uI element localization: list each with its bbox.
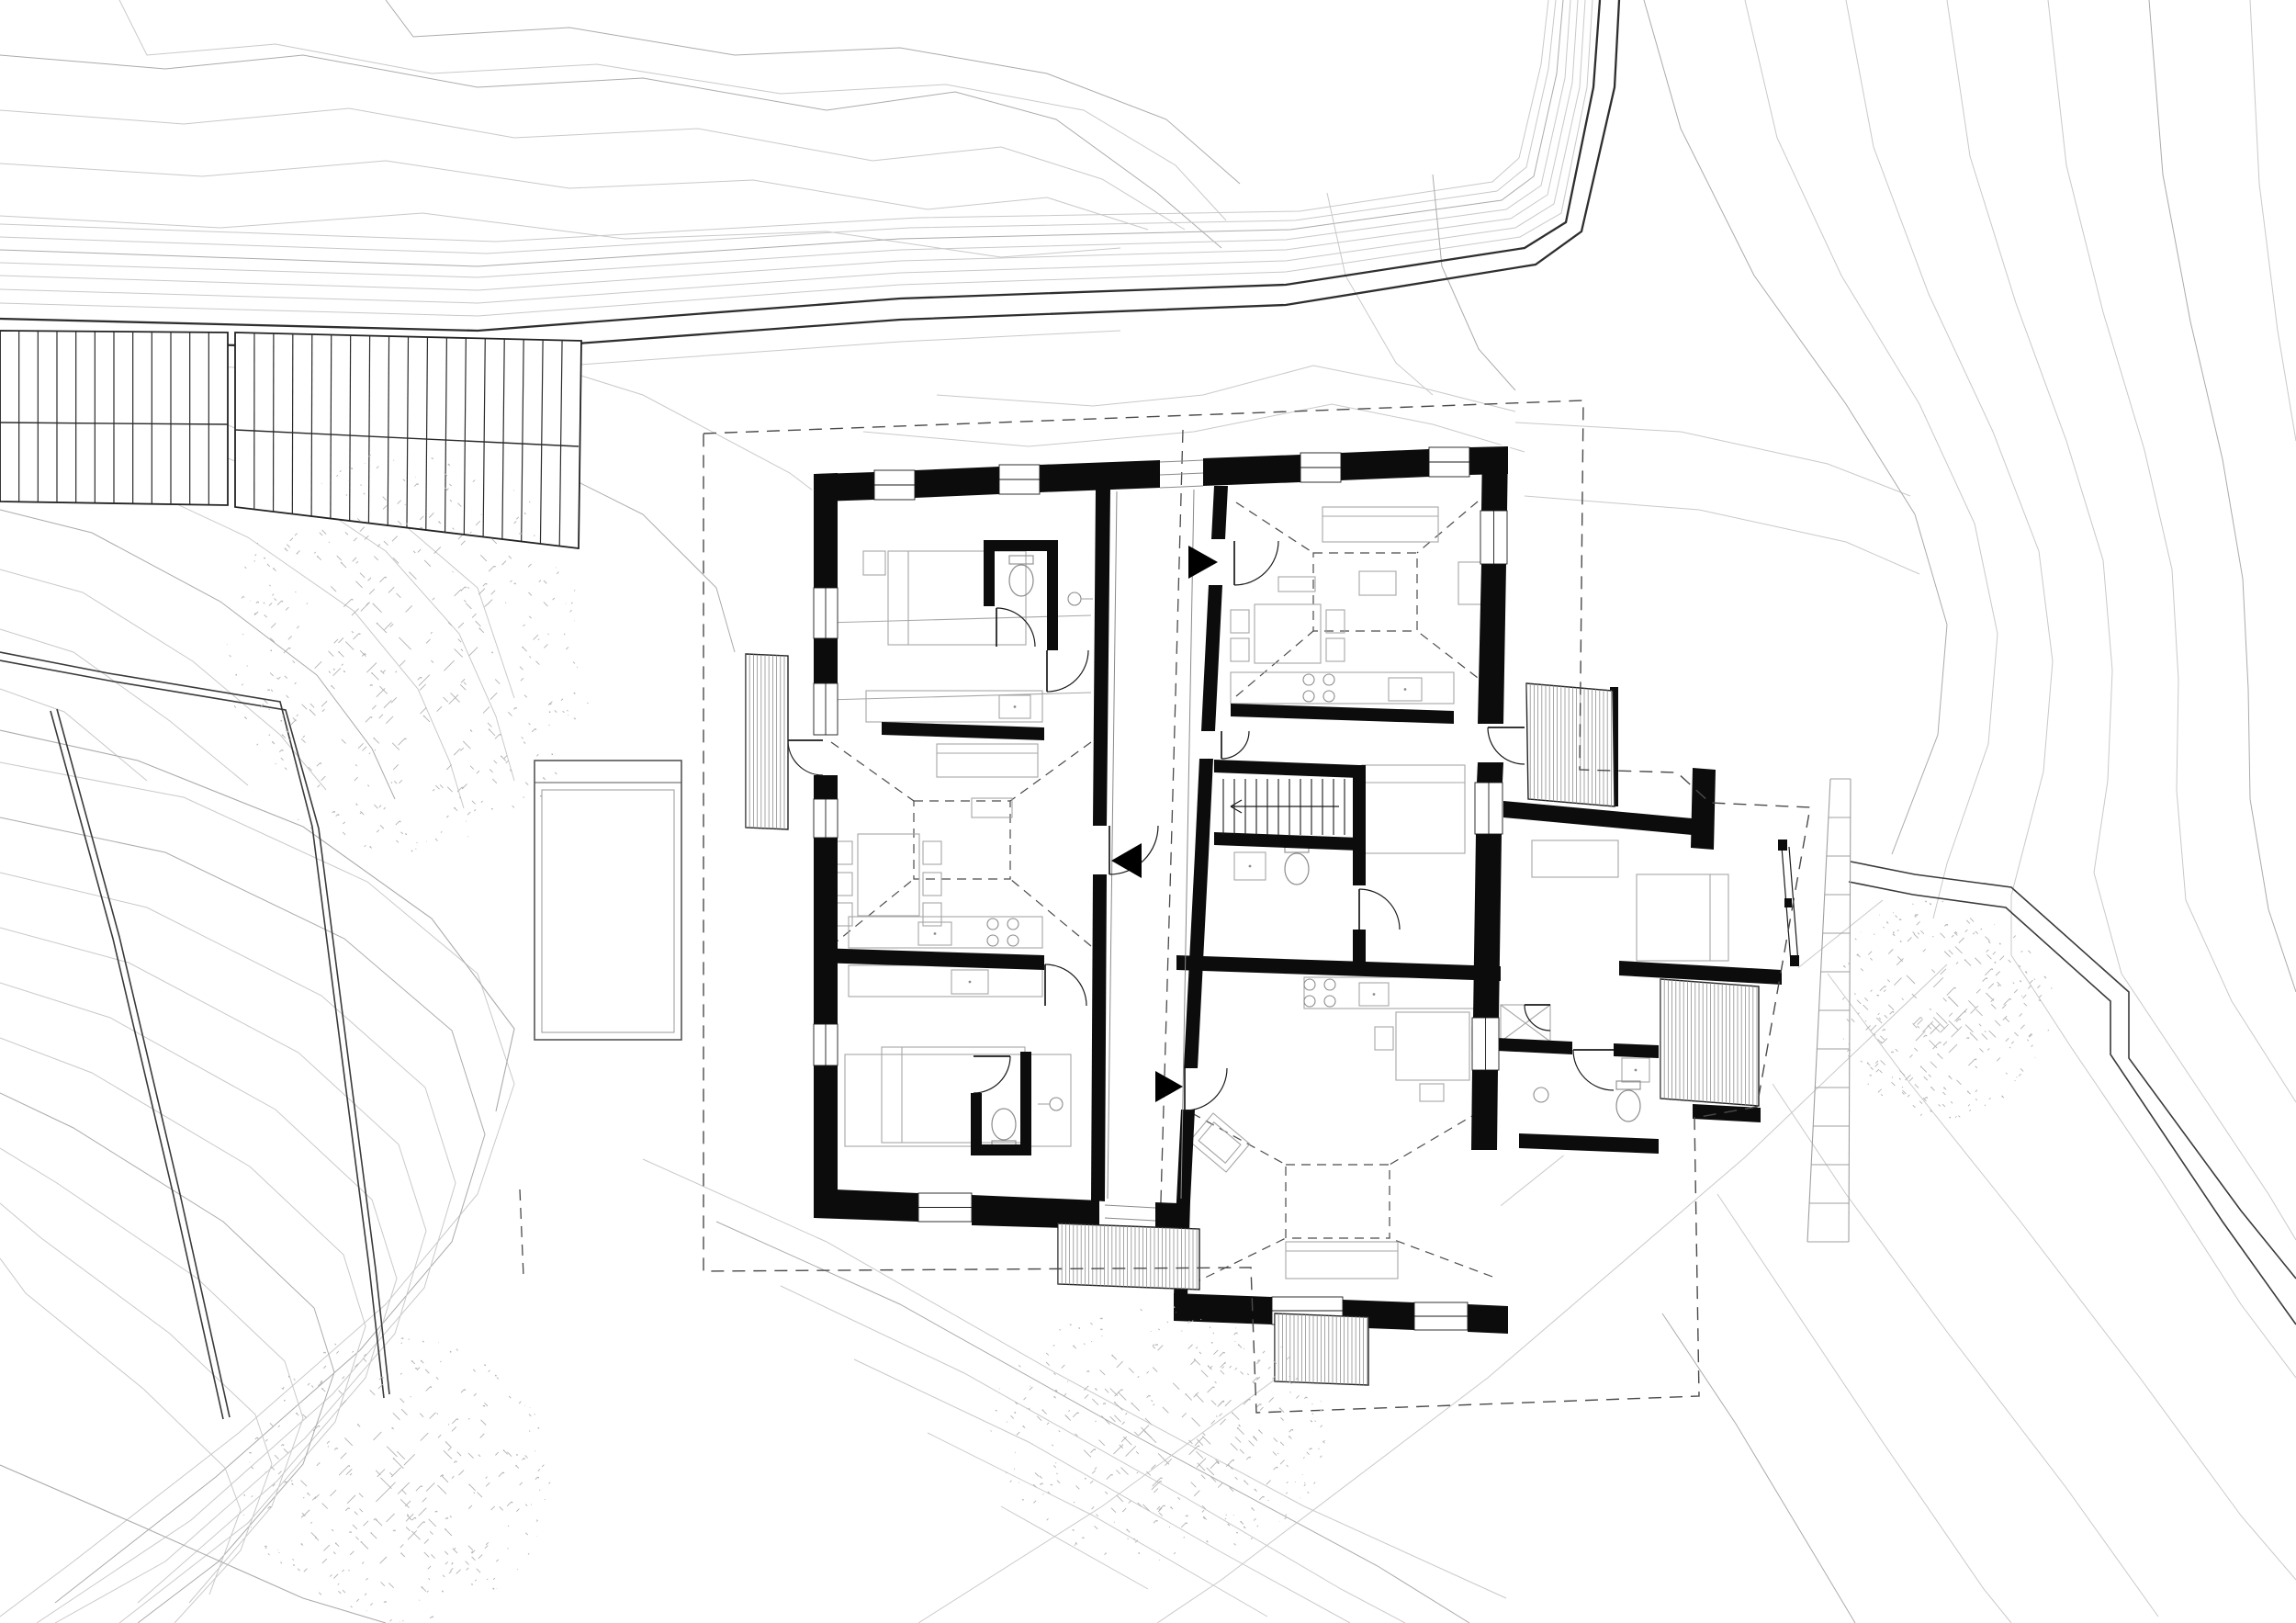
tree [1842,901,2052,1119]
boundary-dash [520,1189,523,1277]
site-plan-drawing [0,0,2296,1623]
road [0,0,1619,351]
pergola [0,331,581,548]
site-plan [0,0,2296,1623]
pool-terrace [535,761,681,1040]
terrain-steps [1807,779,1851,1242]
